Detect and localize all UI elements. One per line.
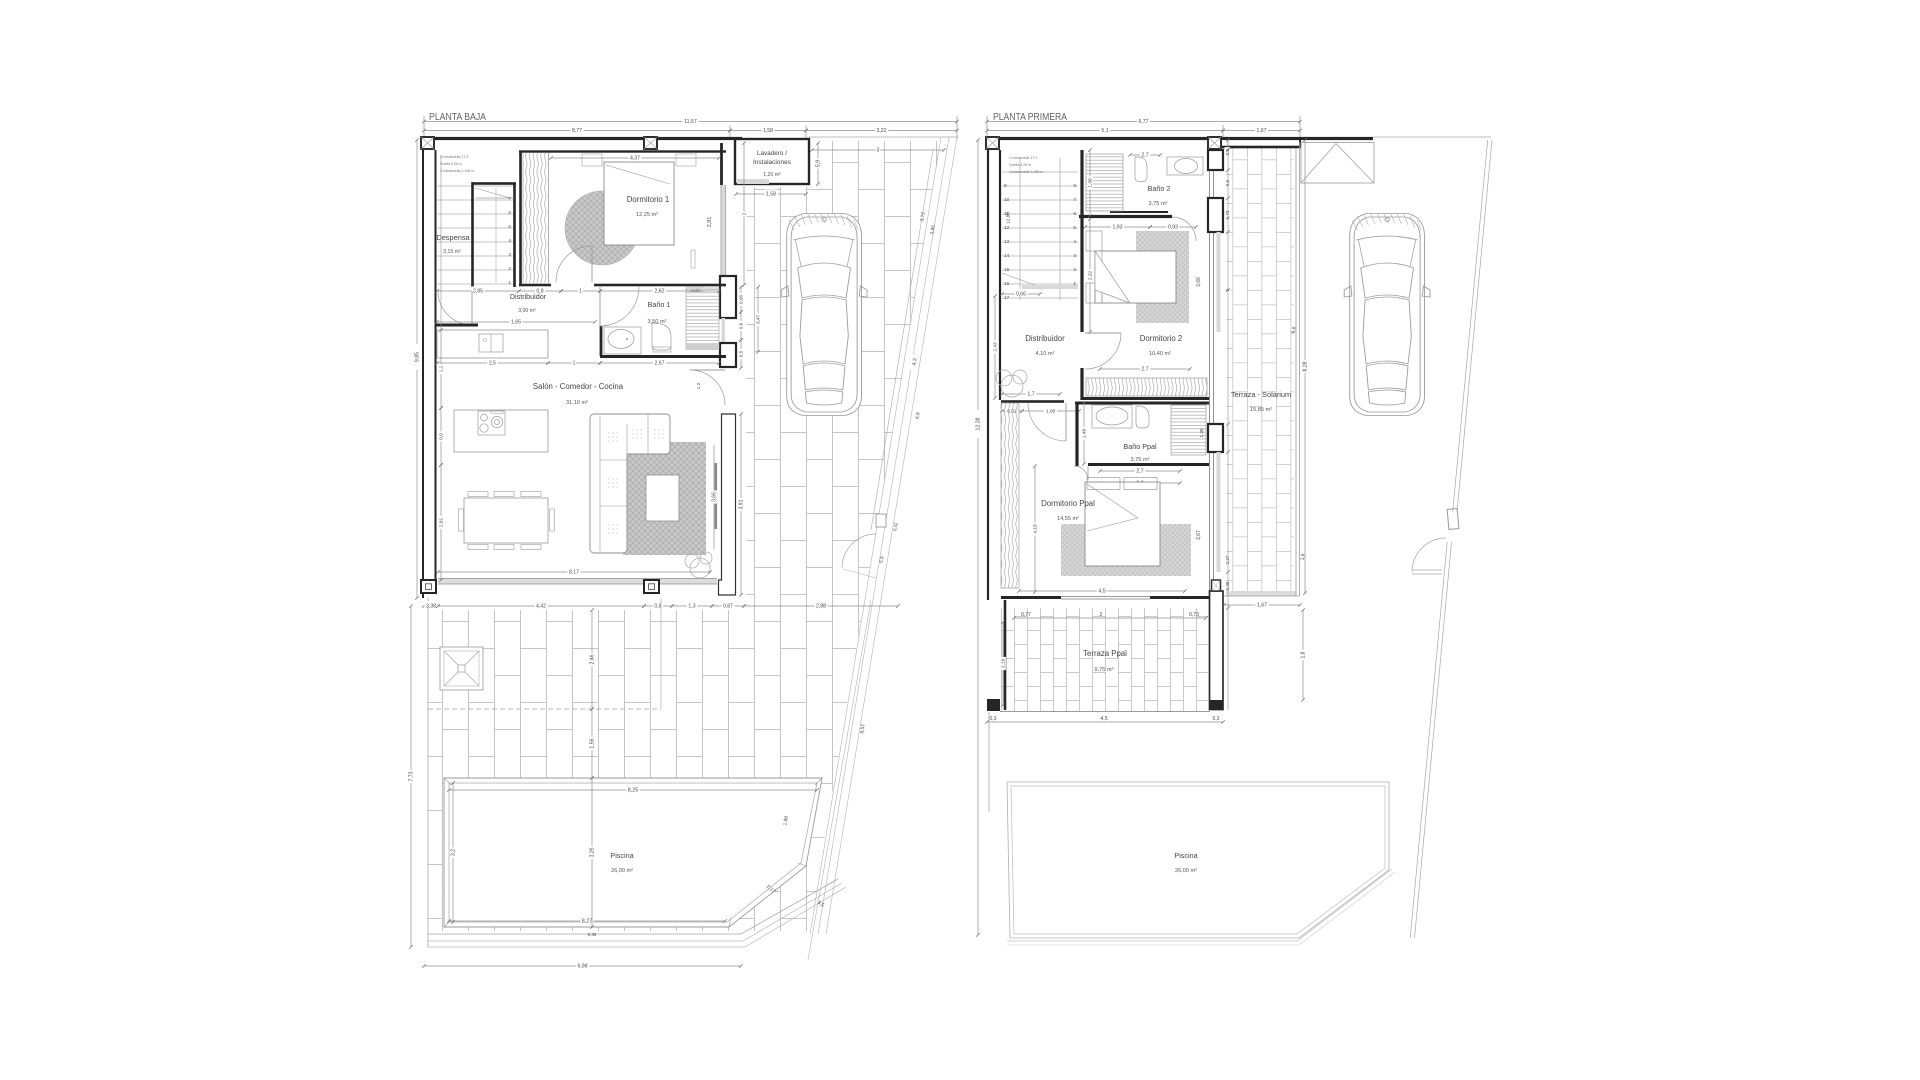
svg-text:2,88: 2,88	[816, 604, 826, 610]
svg-text:0,77: 0,77	[1021, 612, 1031, 618]
svg-text:4,5: 4,5	[1098, 589, 1106, 595]
svg-text:8,77: 8,77	[572, 128, 582, 134]
svg-text:0,3: 0,3	[990, 716, 997, 722]
svg-text:2,32: 2,32	[1088, 271, 1094, 281]
svg-text:1,38: 1,38	[1088, 178, 1094, 188]
svg-text:2,81: 2,81	[439, 518, 445, 528]
svg-text:2,5: 2,5	[489, 361, 496, 367]
svg-text:6: 6	[508, 210, 511, 216]
svg-text:1,67: 1,67	[1257, 603, 1267, 609]
svg-text:BAÑO: BAÑO	[691, 288, 701, 293]
svg-text:1,48: 1,48	[1082, 429, 1088, 439]
svg-text:1,56: 1,56	[590, 738, 596, 748]
svg-text:3,66: 3,66	[1196, 277, 1202, 287]
svg-text:Despensa: Despensa	[436, 233, 470, 242]
svg-text:16: 16	[1004, 281, 1010, 287]
svg-text:2,7: 2,7	[1141, 153, 1148, 159]
svg-text:3,47: 3,47	[756, 315, 761, 324]
svg-text:1,20 m²: 1,20 m²	[763, 172, 781, 178]
svg-text:26,00 m²: 26,00 m²	[1175, 868, 1197, 874]
svg-text:2: 2	[508, 266, 511, 272]
svg-text:14: 14	[1004, 253, 1010, 259]
svg-text:5,9: 5,9	[816, 160, 822, 167]
svg-text:6,98: 6,98	[577, 964, 587, 970]
svg-text:4,42: 4,42	[536, 604, 546, 610]
svg-text:8,6: 8,6	[1291, 326, 1298, 334]
svg-text:6,77: 6,77	[1138, 119, 1148, 125]
svg-text:12: 12	[1004, 225, 1010, 231]
svg-text:3,91: 3,91	[739, 499, 745, 509]
svg-text:9,36: 9,36	[588, 932, 597, 937]
svg-text:2,7: 2,7	[1141, 367, 1148, 373]
svg-text:0,93: 0,93	[1168, 225, 1178, 231]
svg-text:Baño 1: Baño 1	[648, 300, 671, 309]
svg-text:26,00 m²: 26,00 m²	[611, 868, 633, 874]
svg-text:0,5: 0,5	[739, 350, 744, 357]
svg-text:Salón - Comedor - Cocina: Salón - Comedor - Cocina	[533, 382, 624, 391]
svg-text:Distribuidor: Distribuidor	[1025, 334, 1065, 343]
svg-text:2,7: 2,7	[1136, 469, 1143, 475]
svg-text:12,38: 12,38	[976, 417, 982, 430]
svg-text:7: 7	[508, 196, 511, 202]
svg-text:15,85 m²: 15,85 m²	[1250, 407, 1272, 413]
svg-text:7,73: 7,73	[409, 771, 415, 781]
svg-text:0,6: 0,6	[739, 322, 744, 329]
svg-text:1,58: 1,58	[766, 192, 776, 198]
svg-text:3,50 m²: 3,50 m²	[648, 319, 667, 325]
svg-text:1,6: 1,6	[1300, 553, 1307, 561]
svg-text:Dormitorio 2: Dormitorio 2	[1140, 334, 1182, 343]
svg-text:3: 3	[508, 252, 511, 258]
svg-text:2,67: 2,67	[655, 361, 665, 367]
svg-text:Huella 0,28 m: Huella 0,28 m	[440, 162, 462, 166]
svg-text:6,73: 6,73	[1225, 210, 1230, 219]
svg-text:0,3: 0,3	[1225, 148, 1230, 155]
svg-text:2,43: 2,43	[993, 342, 999, 352]
svg-text:4,3: 4,3	[912, 358, 919, 366]
svg-text:9,75 m²: 9,75 m²	[1095, 667, 1114, 673]
svg-text:13: 13	[1004, 239, 1010, 245]
svg-text:Huella 0,28 m: Huella 0,28 m	[1009, 163, 1031, 167]
svg-text:3,22: 3,22	[876, 128, 886, 134]
svg-text:8,17: 8,17	[569, 570, 579, 576]
svg-text:2,62: 2,62	[654, 289, 664, 295]
svg-text:2,81: 2,81	[707, 217, 713, 228]
svg-text:4,5: 4,5	[1100, 716, 1108, 722]
svg-text:8,27: 8,27	[582, 919, 593, 925]
svg-text:2,37: 2,37	[1225, 555, 1230, 564]
svg-text:5: 5	[508, 224, 511, 230]
svg-text:3,15 m²: 3,15 m²	[443, 249, 461, 255]
svg-text:3,75 m²: 3,75 m²	[1131, 457, 1150, 463]
svg-text:3,2: 3,2	[451, 849, 457, 856]
svg-text:4,9: 4,9	[914, 412, 921, 420]
svg-text:0,9: 0,9	[439, 433, 445, 440]
svg-text:1: 1	[508, 280, 511, 286]
svg-text:3,00 m²: 3,00 m²	[518, 308, 536, 314]
svg-text:2,67: 2,67	[1196, 530, 1202, 540]
svg-text:Baño 2: Baño 2	[1148, 184, 1171, 193]
svg-text:1,2: 1,2	[696, 382, 702, 389]
svg-text:5,6: 5,6	[1225, 179, 1230, 186]
svg-text:0,87: 0,87	[723, 604, 733, 610]
svg-text:Dormitorio 1: Dormitorio 1	[627, 195, 669, 204]
svg-text:4,18: 4,18	[1033, 524, 1039, 534]
svg-text:4: 4	[1073, 239, 1076, 245]
svg-text:Baño Ppal: Baño Ppal	[1123, 442, 1157, 451]
svg-text:6: 6	[1073, 211, 1076, 217]
svg-text:Contrahuella 17,3: Contrahuella 17,3	[1009, 156, 1037, 160]
svg-text:0,73: 0,73	[1189, 612, 1199, 618]
svg-text:1,58: 1,58	[763, 128, 773, 134]
svg-text:17: 17	[1004, 295, 1010, 301]
svg-text:5: 5	[1073, 225, 1076, 231]
svg-text:4: 4	[508, 238, 511, 244]
svg-text:Contrahuella 0,185 m: Contrahuella 0,185 m	[1009, 170, 1043, 174]
svg-text:Instalaciones: Instalaciones	[753, 160, 791, 166]
svg-text:12,80: 12,80	[1006, 212, 1012, 224]
svg-text:0,8: 0,8	[654, 604, 661, 610]
svg-text:15: 15	[1004, 267, 1010, 273]
svg-text:8,28: 8,28	[1303, 361, 1309, 371]
svg-text:5,9: 5,9	[878, 556, 885, 564]
svg-text:7: 7	[1073, 197, 1076, 203]
svg-text:3,75 m²: 3,75 m²	[1149, 201, 1168, 207]
svg-text:1: 1	[579, 289, 582, 295]
svg-text:1,67: 1,67	[1256, 128, 1266, 134]
svg-text:10,40 m²: 10,40 m²	[1149, 351, 1171, 357]
svg-text:10: 10	[1004, 197, 1010, 203]
svg-text:4,10 m²: 4,10 m²	[1036, 351, 1055, 357]
svg-text:12,25 m²: 12,25 m²	[636, 212, 658, 218]
svg-text:5,35: 5,35	[1225, 581, 1230, 590]
svg-text:3: 3	[877, 148, 880, 154]
svg-text:5,1: 5,1	[1101, 128, 1108, 134]
svg-text:2,85: 2,85	[473, 289, 483, 295]
svg-text:Piscina: Piscina	[610, 851, 633, 860]
svg-text:1,8: 1,8	[1301, 651, 1307, 658]
svg-text:14,55 m²: 14,55 m²	[1057, 516, 1079, 522]
svg-text:Distribuidor: Distribuidor	[510, 292, 547, 301]
svg-text:Contrahuella 0,185 m: Contrahuella 0,185 m	[440, 169, 474, 173]
svg-text:Terraza Ppal: Terraza Ppal	[1083, 649, 1127, 658]
svg-text:8: 8	[1073, 183, 1076, 189]
svg-text:3,66: 3,66	[712, 492, 718, 502]
svg-text:2: 2	[1100, 612, 1103, 618]
svg-text:11,57: 11,57	[684, 119, 697, 125]
svg-text:0,3: 0,3	[1213, 716, 1220, 722]
svg-text:1,3: 1,3	[688, 604, 695, 610]
svg-text:Dormitorio Ppal: Dormitorio Ppal	[1041, 499, 1095, 508]
svg-text:Piscina: Piscina	[1174, 851, 1197, 860]
svg-text:Lavadero /: Lavadero /	[757, 151, 787, 157]
svg-text:0,08: 0,08	[739, 295, 744, 304]
svg-text:1,7: 1,7	[1027, 392, 1034, 398]
svg-text:3,38: 3,38	[426, 604, 436, 610]
svg-text:2: 2	[1073, 267, 1076, 273]
svg-text:2,46: 2,46	[590, 654, 596, 664]
svg-text:2: 2	[742, 212, 748, 215]
svg-text:8,25: 8,25	[628, 788, 639, 794]
svg-text:4,37: 4,37	[630, 156, 640, 162]
svg-text:9,85: 9,85	[415, 352, 421, 362]
svg-text:3,25: 3,25	[590, 847, 596, 857]
svg-text:2,19: 2,19	[1001, 659, 1007, 669]
svg-text:1,93: 1,93	[1112, 225, 1122, 231]
svg-text:1,1: 1,1	[439, 365, 445, 372]
svg-text:1: 1	[573, 361, 576, 367]
svg-text:1,65: 1,65	[511, 320, 521, 326]
svg-text:3: 3	[1073, 253, 1076, 259]
svg-text:Terraza - Solarium: Terraza - Solarium	[1231, 390, 1291, 399]
svg-text:9: 9	[1004, 183, 1007, 189]
svg-text:1,39: 1,39	[1199, 428, 1205, 438]
svg-text:1,08: 1,08	[1046, 409, 1056, 415]
svg-text:0,66: 0,66	[1016, 292, 1026, 298]
svg-text:Contrahuella 17,3: Contrahuella 17,3	[440, 155, 468, 159]
svg-text:31,10 m²: 31,10 m²	[566, 400, 588, 406]
